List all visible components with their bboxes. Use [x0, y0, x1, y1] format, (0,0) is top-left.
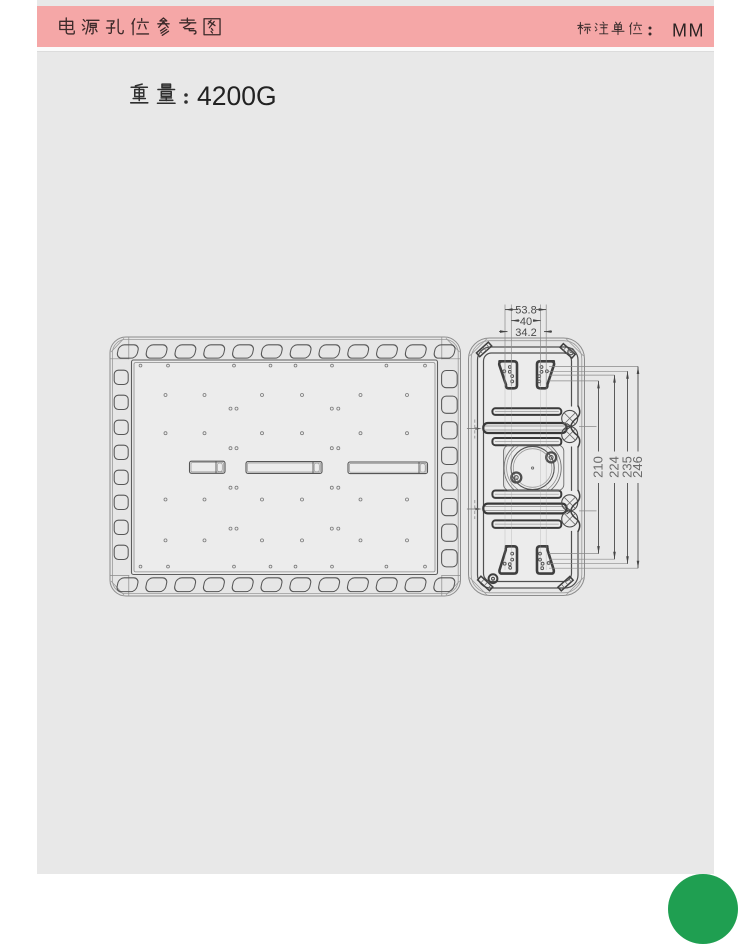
svg-text:246: 246 — [630, 456, 645, 478]
svg-text:210: 210 — [591, 456, 606, 478]
svg-text:4200G: 4200G — [197, 81, 277, 111]
svg-text:53.8: 53.8 — [515, 305, 536, 317]
svg-text:34.2: 34.2 — [515, 327, 536, 339]
